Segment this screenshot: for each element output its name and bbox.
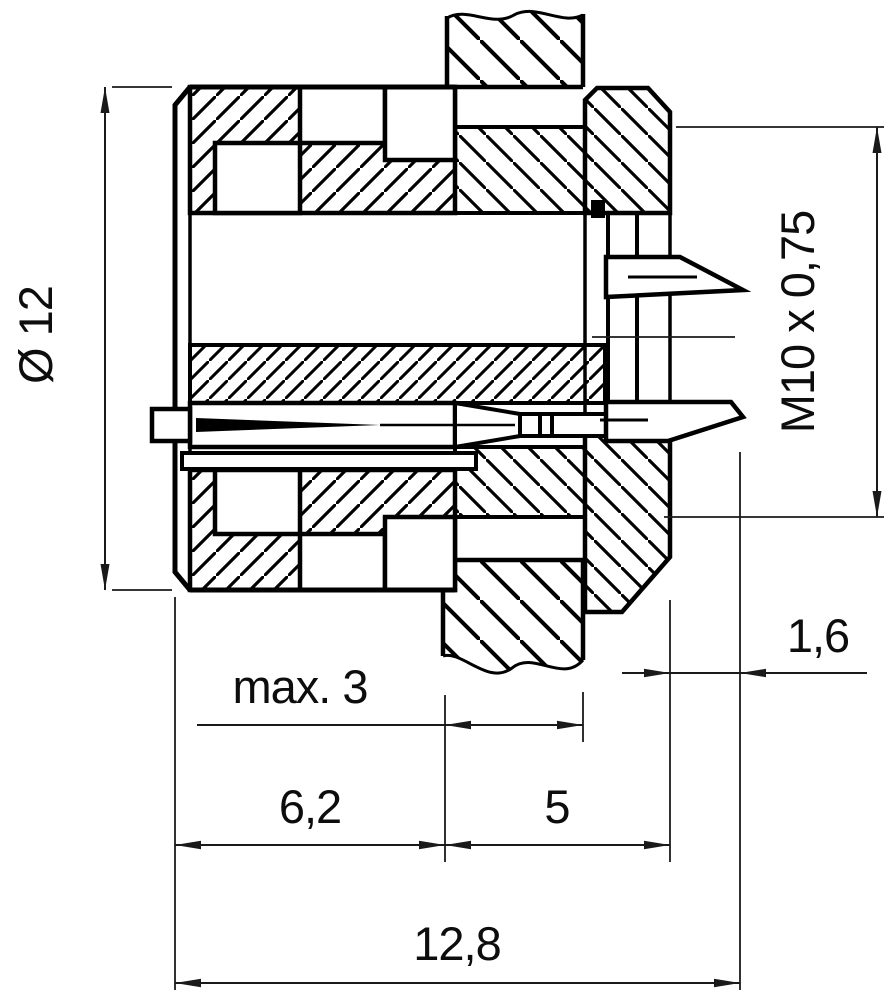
- hex-nut-top: [585, 88, 670, 213]
- coupling-slot-bottom: [215, 470, 300, 534]
- dim-panel-thickness-label: max. 3: [232, 660, 367, 713]
- dim-front-length-label: 6,2: [279, 780, 341, 833]
- solder-tab-lower: [600, 402, 743, 441]
- hex-nut-bottom: [585, 430, 670, 612]
- solder-tab-upper: [606, 257, 743, 297]
- panel-top-cross-section: [443, 2, 587, 88]
- contact-carrier: [182, 453, 476, 469]
- panel-bottom-cross-section: [443, 560, 583, 686]
- thread-section-top: [455, 127, 585, 213]
- dim-mid-length-label: 5: [544, 780, 569, 833]
- coupling-slot-top: [215, 143, 300, 213]
- contact-entry-tip: [152, 409, 190, 441]
- connector-shell: [175, 87, 455, 590]
- dim-rear-offset-label: 1,6: [787, 609, 849, 662]
- dim-thread-label: M10 x 0,75: [771, 211, 824, 434]
- dim-total-length-label: 12,8: [413, 917, 500, 970]
- drawing-canvas: Ø 12 M10 x 0,75 max. 3 6,2 5 1,6 12,8: [0, 0, 892, 1000]
- technical-drawing: Ø 12 M10 x 0,75 max. 3 6,2 5 1,6 12,8: [0, 0, 892, 1000]
- dim-diameter-label: Ø 12: [9, 286, 62, 384]
- insulator-section: [190, 345, 605, 403]
